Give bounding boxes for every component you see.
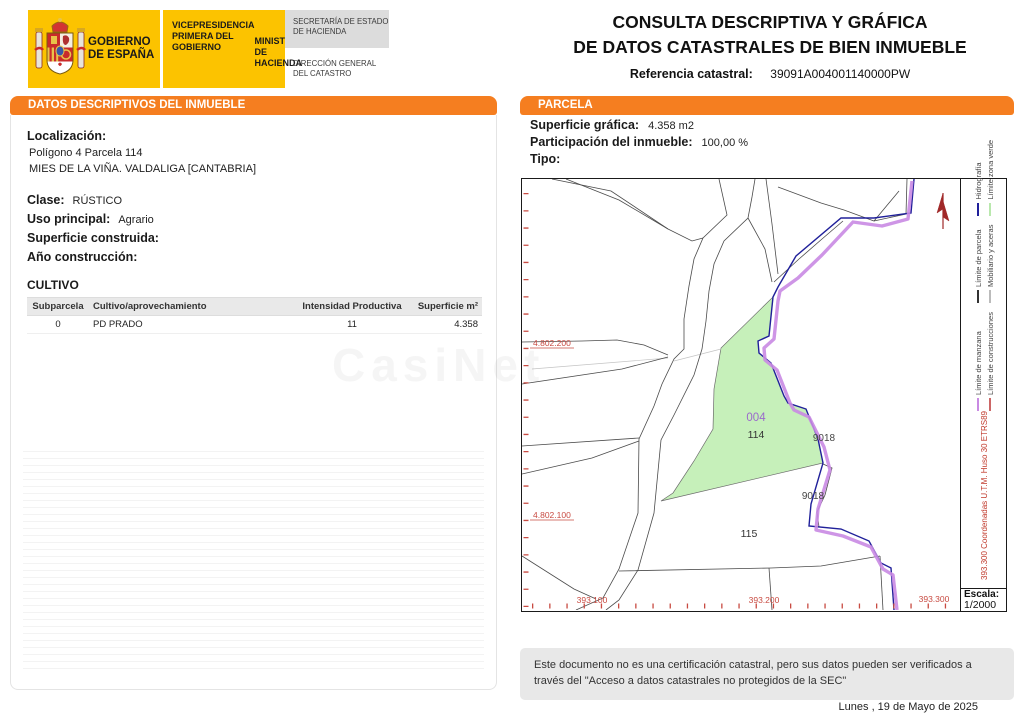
legend-grid: Límite de manzana Límite de construccion… bbox=[974, 140, 995, 411]
uso-row: Uso principal: Agrario bbox=[27, 212, 482, 226]
parcel-code-label: 004 bbox=[746, 412, 766, 424]
zona-verde-swatch bbox=[989, 203, 991, 216]
cell-superficie: 4.358 bbox=[408, 316, 482, 334]
title-line-1: CONSULTA DESCRIPTIVA Y GRÁFICA bbox=[560, 10, 980, 35]
coord-y2-label: 4.802.100 bbox=[533, 510, 571, 520]
manzana-limit-line bbox=[764, 181, 912, 610]
cadastral-reference: Referencia catastral: 39091A004001140000… bbox=[560, 67, 980, 81]
uso-value: Agrario bbox=[118, 214, 153, 226]
manzana-swatch bbox=[977, 398, 979, 411]
uso-label: Uso principal: bbox=[27, 212, 110, 226]
direccion-general-label: DIRECCIÓN GENERAL DEL CATASTRO bbox=[285, 48, 389, 78]
col-subparcela: Subparcela bbox=[27, 298, 89, 316]
col-intensidad: Intensidad Productiva bbox=[296, 298, 408, 316]
cadastral-document-page: GOBIERNO DE ESPAÑA VICEPRESIDENCIA PRIME… bbox=[0, 0, 1024, 723]
parcel-fields: Superficie gráfica: 4.358 m2 Participaci… bbox=[530, 118, 1010, 169]
legend-item-construcciones: Límite de construcciones bbox=[986, 312, 995, 411]
legend-item-hidrografia: Hidrografía bbox=[974, 140, 983, 216]
cell-intensidad: 11 bbox=[296, 316, 408, 334]
highlighted-parcel-114 bbox=[661, 297, 823, 501]
north-arrow-icon bbox=[937, 193, 949, 229]
parcel-number-label: 114 bbox=[748, 429, 765, 441]
government-logo-block: GOBIERNO DE ESPAÑA VICEPRESIDENCIA PRIME… bbox=[28, 10, 389, 88]
legend-item-manzana: Límite de manzana bbox=[974, 312, 983, 411]
ano-construccion-row: Año construcción: bbox=[27, 250, 482, 264]
superficie-construida-label: Superficie construida: bbox=[27, 231, 159, 245]
mobiliario-swatch bbox=[989, 290, 991, 303]
disclaimer-box: Este documento no es una certificación c… bbox=[520, 648, 1014, 700]
table-row: 0 PD PRADO 11 4.358 bbox=[27, 316, 482, 334]
reference-value: 39091A004001140000PW bbox=[770, 67, 910, 81]
map-legend: 393.300 Coordenadas U.T.M. Huso 30 ETRS8… bbox=[963, 184, 1005, 584]
scale-value: 1/2000 bbox=[964, 600, 1006, 611]
tipo-row: Tipo: bbox=[530, 152, 1010, 166]
road-9018-label-1: 9018 bbox=[813, 433, 836, 444]
superficie-grafica-row: Superficie gráfica: 4.358 m2 bbox=[530, 118, 1010, 132]
cultivo-header-row: Subparcela Cultivo/aprovechamiento Inten… bbox=[27, 298, 482, 316]
empty-table-rows bbox=[23, 445, 484, 675]
secretaria-estado-label: SECRETARÍA DE ESTADO DE HACIENDA bbox=[285, 10, 389, 48]
vicepresidencia-label: VICEPRESIDENCIA PRIMERA DEL GOBIERNO bbox=[172, 20, 255, 88]
cell-subparcela: 0 bbox=[27, 316, 89, 334]
col-cultivo: Cultivo/aprovechamiento bbox=[89, 298, 296, 316]
spain-coat-of-arms-icon bbox=[34, 16, 86, 83]
cultivo-title: CULTIVO bbox=[27, 278, 482, 292]
coord-y1-label: 4.802.200 bbox=[533, 338, 571, 348]
scale-box: Escala: 1/2000 bbox=[960, 588, 1006, 611]
descriptive-data-panel: Localización: Polígono 4 Parcela 114 MIE… bbox=[10, 115, 497, 690]
cell-cultivo: PD PRADO bbox=[89, 316, 296, 334]
localizacion-label: Localización: bbox=[27, 129, 482, 143]
reference-label: Referencia catastral: bbox=[630, 67, 753, 81]
ano-construccion-label: Año construcción: bbox=[27, 250, 137, 264]
document-title: CONSULTA DESCRIPTIVA Y GRÁFICA DE DATOS … bbox=[560, 10, 980, 81]
road-9018-label-2: 9018 bbox=[802, 491, 825, 502]
tipo-label: Tipo: bbox=[530, 152, 560, 166]
clase-row: Clase: RÚSTICO bbox=[27, 193, 482, 207]
legend-item-zona-verde: Límite zona verde bbox=[986, 140, 995, 216]
ministerio-box: VICEPRESIDENCIA PRIMERA DEL GOBIERNO MIN… bbox=[163, 10, 285, 88]
coord-x2-label: 393.200 bbox=[749, 595, 780, 605]
utm-coordinates-note: 393.300 Coordenadas U.T.M. Huso 30 ETRS8… bbox=[980, 411, 989, 580]
construcciones-swatch bbox=[989, 398, 991, 411]
hidrografia-swatch bbox=[977, 203, 979, 216]
participacion-value: 100,00 % bbox=[702, 137, 748, 149]
participacion-row: Participación del inmueble: 100,00 % bbox=[530, 135, 1010, 149]
superficie-grafica-label: Superficie gráfica: bbox=[530, 118, 639, 132]
coord-x3-label: 393.300 bbox=[919, 594, 950, 604]
superficie-grafica-value: 4.358 m2 bbox=[648, 120, 694, 132]
clase-value: RÚSTICO bbox=[73, 195, 123, 207]
mobiliario-lines bbox=[532, 349, 721, 369]
neighbor-parcel-label: 115 bbox=[741, 528, 758, 540]
superficie-construida-row: Superficie construida: bbox=[27, 231, 482, 245]
cultivo-table: Subparcela Cultivo/aprovechamiento Inten… bbox=[27, 297, 482, 334]
coord-x1-label: 393.100 bbox=[577, 595, 608, 605]
map-drawing: 4.802.200 4.802.100 393.100 393.200 393.… bbox=[522, 179, 959, 610]
localizacion-line-1: Polígono 4 Parcela 114 bbox=[27, 147, 482, 159]
left-section-header: DATOS DESCRIPTIVOS DEL INMUEBLE bbox=[10, 96, 497, 115]
title-line-2: DE DATOS CATASTRALES DE BIEN INMUEBLE bbox=[560, 35, 980, 60]
coat-of-arms-box: GOBIERNO DE ESPAÑA bbox=[28, 10, 160, 88]
legend-item-parcela: Límite de parcela bbox=[974, 225, 983, 304]
map-legend-sidebar: 393.300 Coordenadas U.T.M. Huso 30 ETRS8… bbox=[960, 179, 1006, 611]
right-section-header: PARCELA bbox=[520, 96, 1014, 115]
legend-item-mobiliario: Mobiliario y aceras bbox=[986, 225, 995, 304]
participacion-label: Participación del inmueble: bbox=[530, 135, 693, 149]
gobierno-espana-label: GOBIERNO DE ESPAÑA bbox=[86, 36, 154, 62]
clase-label: Clase: bbox=[27, 193, 65, 207]
organism-column: SECRETARÍA DE ESTADO DE HACIENDA DIRECCI… bbox=[285, 10, 389, 88]
parcela-swatch bbox=[977, 290, 979, 303]
parcel-map: 4.802.200 4.802.100 393.100 393.200 393.… bbox=[521, 178, 1007, 612]
localizacion-line-2: MIES DE LA VIÑA. VALDALIGA [CANTABRIA] bbox=[27, 163, 482, 175]
document-date: Lunes , 19 de Mayo de 2025 bbox=[839, 701, 978, 713]
col-superficie: Superficie m² bbox=[408, 298, 482, 316]
